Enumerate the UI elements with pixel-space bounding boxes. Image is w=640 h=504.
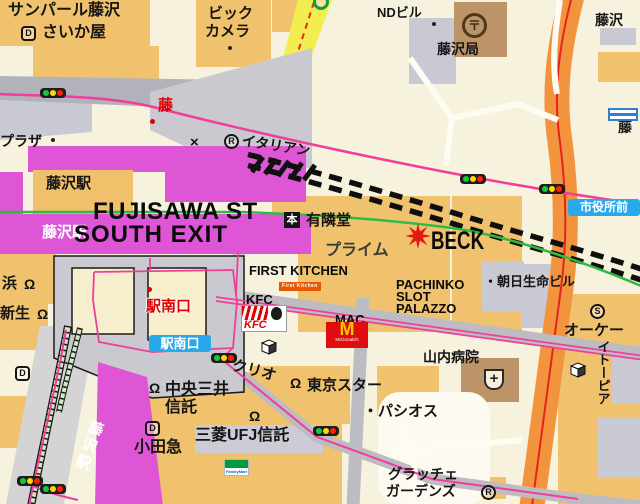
- traffic-light-enoden-1-icon: [17, 476, 43, 486]
- label-plaza: プラザ: [0, 134, 42, 149]
- boundary-sign-icon: [608, 108, 638, 121]
- traffic-light-prime-icon: [460, 174, 486, 184]
- bank-mark-mufj-icon: Ω: [249, 410, 260, 423]
- label-grazie-2: ガーデンズ: [386, 484, 456, 499]
- label-beck: BECK: [431, 228, 484, 254]
- restaurant-mark-italian-icon: R: [224, 134, 239, 149]
- label-nd-building: NDビル: [377, 6, 422, 20]
- label-saikaya: さいか屋: [42, 25, 106, 42]
- dot-bic-camera: [228, 46, 232, 50]
- mcdonalds-logo: MMcDonald's: [326, 322, 368, 348]
- dot-rotary-red: [147, 287, 152, 292]
- kfc-logo: KFC: [241, 305, 287, 332]
- traffic-light-ufj-icon: [313, 426, 339, 436]
- familymart-logo: FamilyMart: [224, 459, 249, 476]
- dot-plaza: [51, 138, 55, 142]
- daiei-mark-saikaya-icon: D: [21, 26, 36, 41]
- label-first-kitchen: FIRST KITCHEN: [249, 264, 348, 278]
- label-fuji-red: 藤: [158, 98, 173, 114]
- traffic-light-enoden-2-icon: [40, 484, 66, 494]
- first-kitchen-logo: First Kitchen: [279, 282, 321, 291]
- label-ekinan-exit-red: 駅南口: [146, 299, 191, 315]
- label-shinsei-bank: 新生: [0, 306, 30, 322]
- label-ok-store: オーケー: [564, 323, 624, 339]
- label-x-mark: ×: [190, 135, 199, 151]
- label-mitsubishi-ufj: 三菱UFJ信託: [195, 428, 289, 445]
- label-odakyu: 小田急: [134, 440, 182, 457]
- label-sunpearl-fujisawa: サンパール藤沢: [8, 3, 120, 20]
- s-mark-ok-store-icon: S: [590, 304, 605, 319]
- label-fujisawa-topright: 藤沢: [595, 13, 623, 28]
- d-mark-odakyu-icon: D: [145, 421, 160, 436]
- traffic-light-shiyakusho-icon: [539, 184, 565, 194]
- label-bic-camera-2: カメラ: [205, 24, 250, 40]
- label-hama-bank: 浜: [2, 276, 17, 292]
- label-palazzo: PALAZZO: [396, 302, 456, 316]
- label-fuji-right-edge: 藤: [618, 120, 632, 135]
- traffic-light-northwest-icon: [40, 88, 66, 98]
- label-chuo-mitsui-2: 信託: [165, 400, 197, 417]
- bank-mark-chuo-mitsui-icon: Ω: [149, 382, 160, 395]
- rotary-island-1: [72, 268, 134, 334]
- dot-nd-building: [432, 22, 436, 26]
- dot-fuji-red: [150, 119, 155, 124]
- label-yurindo: 有隣堂: [306, 213, 351, 229]
- label-prime: プライム: [325, 243, 389, 260]
- post-office-icon: 〒: [462, 13, 487, 38]
- label-itopia: イトーピア: [596, 340, 610, 405]
- label-tokyo-star: 東京スター: [307, 378, 382, 394]
- bus-stop-shiyakusho-mae: 市役所前: [568, 199, 640, 216]
- label-grazie-1: グラッチェ: [388, 467, 458, 482]
- label-asahi-seimei: ・朝日生命ビル: [484, 275, 575, 289]
- traffic-light-rotary-icon: [211, 353, 237, 363]
- bank-mark-hama-icon: Ω: [24, 278, 35, 291]
- label-fujisawa-post-office: 藤沢局: [437, 42, 479, 57]
- bookstore-mark-yurindo-icon: 本: [284, 212, 300, 228]
- bus-stop-ekinan-exit: 駅南口: [149, 335, 211, 352]
- map-canvas: 市役所前 駅南口 サンパール藤沢さいか屋ビックカメラNDビル藤沢局藤沢藤藤プラザ…: [0, 0, 640, 504]
- label-pasios: ・パシオス: [363, 404, 438, 420]
- hospital-icon: +: [484, 369, 504, 390]
- restaurant-mark-grazie-icon: R: [481, 485, 496, 500]
- d-mark-southwest-icon: D: [15, 366, 30, 381]
- label-fujisawa-station-1: 藤沢駅: [46, 176, 91, 192]
- bank-mark-tokyo-star-icon: Ω: [290, 377, 301, 390]
- label-bic-camera-1: ビック: [208, 6, 253, 22]
- label-chuo-mitsui-1: 中央三井: [165, 382, 229, 399]
- label-yamauchi-hospital: 山内病院: [423, 350, 479, 365]
- bank-mark-shinsei-icon: Ω: [37, 308, 48, 321]
- label-south-exit: SOUTH EXIT: [74, 223, 228, 248]
